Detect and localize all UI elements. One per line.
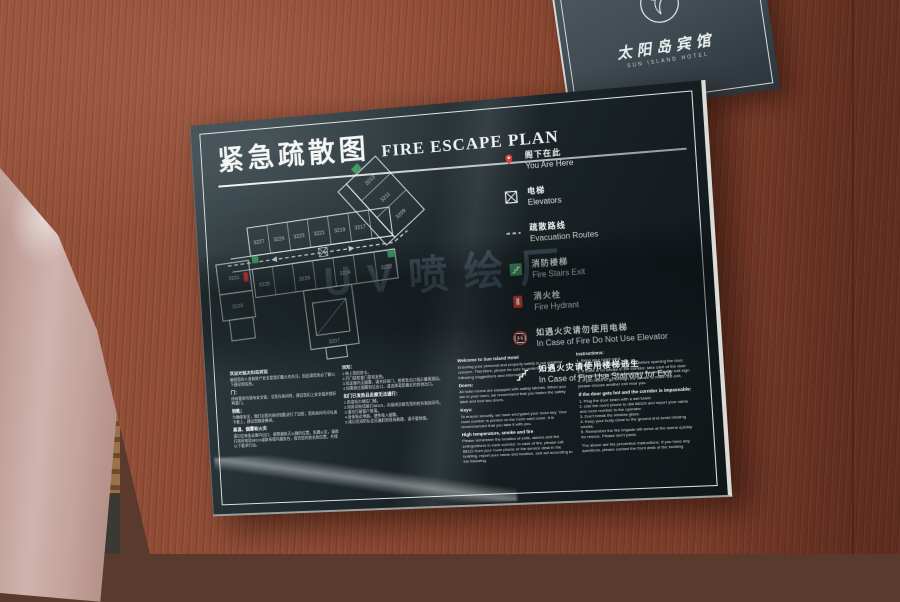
svg-text:3227: 3227 (253, 239, 265, 247)
legend-item-no-elevator: 如遇火灾请勿使用电梯 In Case of Fire Do Not Use El… (511, 318, 708, 351)
photo-scene: 太阳岛宾馆 SUN ISLAND HOTEL 紧急疏散图FIRE ESCAPE … (0, 0, 900, 554)
fire-stairs-icon (506, 261, 525, 278)
stair-exit-marker-right (387, 250, 394, 258)
svg-text:3228: 3228 (258, 281, 270, 289)
info-column-zh-2: 须知：1.带上您的房卡。 2.开门前检查门是否发热。 3.如走廊内无烟雾，请关好… (342, 359, 457, 472)
svg-text:3219: 3219 (334, 227, 346, 235)
svg-text:3224: 3224 (339, 270, 351, 278)
stair-exit-marker-left (252, 256, 259, 263)
svg-text:3209: 3209 (395, 208, 408, 221)
fire-escape-sign: 紧急疏散图FIRE ESCAPE PLAN (190, 80, 733, 516)
svg-text:3207: 3207 (328, 338, 340, 345)
legend-item-stairway-exit: 如遇火灾请使用楼梯逃生 In Case of Fire Use Stairway… (513, 355, 710, 387)
no-elevator-icon (511, 329, 530, 346)
svg-text:3222: 3222 (380, 264, 392, 272)
svg-text:3217: 3217 (354, 224, 366, 232)
legend-item-evacuation-routes: 疏散路线 Evacuation Routes (504, 211, 700, 246)
you-are-here-icon (499, 152, 518, 170)
plan-bottom-wing (303, 284, 360, 361)
svg-text:3223: 3223 (293, 233, 305, 241)
legend-item-elevators: 电梯 Elevators (502, 174, 698, 210)
legend-item-fire-hydrant: 消火栓 Fire Hydrant (508, 281, 705, 315)
info-column-zh-1: 欢迎光临太阳岛宾馆确保您的人身和财产安全是我们最大的关注，因此请您务必了解以下建… (230, 366, 342, 477)
legend-item-fire-stairs: 消防楼梯 Fire Stairs Exit (506, 248, 703, 282)
svg-text:3231: 3231 (228, 275, 240, 282)
svg-text:3225: 3225 (273, 236, 285, 244)
svg-text:3226: 3226 (299, 275, 311, 283)
stairway-exit-icon (513, 366, 532, 383)
evacuation-route-icon (504, 225, 523, 242)
svg-text:3221: 3221 (313, 230, 325, 238)
route-arrow-right (348, 245, 354, 252)
elevator-icon (502, 188, 521, 205)
legend: 阁下在此 You Are Here 电梯 Elevators 疏散路线 Evac… (499, 137, 710, 398)
svg-text:3213: 3213 (364, 174, 377, 187)
svg-text:3229: 3229 (232, 303, 244, 310)
fire-hydrant-icon (508, 293, 527, 310)
svg-text:3211: 3211 (380, 191, 392, 203)
route-arrow-left (271, 256, 277, 262)
hotel-flower-logo-icon (632, 0, 686, 30)
you-are-here-marker (243, 272, 249, 282)
plan-left-wing (216, 260, 258, 341)
wood-seam (852, 0, 856, 554)
